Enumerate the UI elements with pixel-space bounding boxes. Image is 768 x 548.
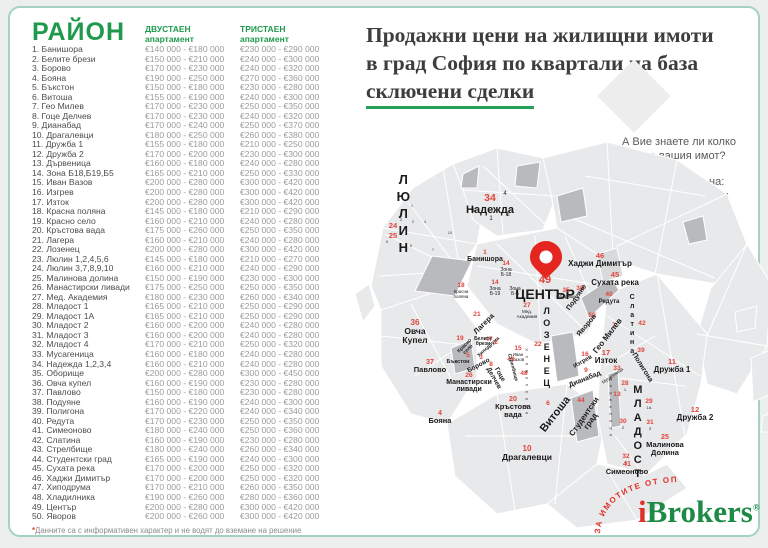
page-title: Продажни цени на жилищни имоти в град Со… <box>366 21 766 109</box>
district-label: ЛЮЛИН <box>396 172 410 257</box>
price-range: €300 000 - €420 000 <box>240 512 335 522</box>
district-number: 14 <box>500 261 511 268</box>
district-number: 24 <box>389 222 397 230</box>
district-label: 37Павлово <box>414 359 446 374</box>
district-number: 2 <box>494 340 498 347</box>
district-label: 313 <box>646 420 653 431</box>
district-label: 12Дружба 2 <box>677 406 714 422</box>
ibrokers-logo: iBrokers® <box>638 494 760 530</box>
sofia-district-map: ЗА ИМОТИТЕ ОТ ОПИТ ЛЮЛИН242513245671034Н… <box>355 136 768 548</box>
district-number: 1 <box>467 249 503 256</box>
district-number: 15 <box>512 346 524 353</box>
district-label: 3 <box>471 208 474 214</box>
district-label: 6 <box>410 244 412 248</box>
district-number: 14 <box>489 280 500 287</box>
district-label: Хладилника <box>524 347 528 417</box>
infographic-card: РАЙОН ДВУСТАЕН апартамент ТРИСТАЕН апарт… <box>8 6 760 537</box>
district-number: 6 <box>546 400 550 407</box>
district-number: 12 <box>677 406 714 414</box>
district-number: 21 <box>473 311 480 318</box>
district-number: 42 <box>638 320 645 327</box>
district-number: 21 <box>473 311 480 318</box>
district-label: Слатина <box>628 294 635 357</box>
district-number: 41 <box>606 461 649 468</box>
district-number: 26 <box>446 372 492 379</box>
district-name: 50. Яворов <box>32 512 145 522</box>
district-label: 18Красна поляна <box>454 283 469 299</box>
district-number: 9 <box>584 367 588 374</box>
district-label: 45Сухата река <box>591 271 639 287</box>
district-number: 10 <box>502 445 552 453</box>
district-label: 1Банишора <box>467 249 503 263</box>
district-number: 49 <box>515 275 575 287</box>
district-number: 27 <box>517 303 538 310</box>
district-number: 2 <box>494 340 498 347</box>
district-label: 40Редута <box>599 292 620 305</box>
district-label: 26Манастирски ливади <box>446 372 492 394</box>
district-label: 1 <box>489 216 492 222</box>
district-number: 13 <box>613 391 620 398</box>
logo-brokers: Brokers <box>647 494 753 529</box>
district-number: 39 <box>637 347 644 354</box>
price-table: 1. Банишора€140 000 - €180 000€230 000 -… <box>32 45 352 522</box>
registered-mark: ® <box>753 503 760 513</box>
district-number: 9 <box>584 367 588 374</box>
district-label: ЛОЗЕНЕЦ <box>541 306 550 390</box>
district-label: 27Мед. Академия <box>517 303 538 319</box>
district-number: 44 <box>577 397 584 404</box>
district-label: Бъкстон <box>446 360 469 366</box>
district-label: 25Малинова Долина <box>646 434 684 457</box>
district-label: 14Зона Б-19 <box>489 280 500 297</box>
district-number: 39 <box>637 347 644 354</box>
district-number: 40 <box>599 292 620 299</box>
column-header-three-room: ТРИСТАЕН апартамент <box>240 24 289 44</box>
district-label: 17Изток <box>595 349 617 365</box>
district-label: 36Овча Купел <box>402 319 427 345</box>
footnote: *Данните са с информативен характер и не… <box>32 526 301 535</box>
district-number: 25 <box>389 232 397 240</box>
district-number: 34 <box>466 194 514 205</box>
district-label: 3 <box>400 218 402 222</box>
district-label: 5 <box>386 240 388 244</box>
district-number: 44 <box>577 397 584 404</box>
district-number: 19 <box>456 336 463 343</box>
table-title: РАЙОН <box>32 18 125 47</box>
district-label: 291А <box>645 399 652 410</box>
district-number: 19 <box>456 336 463 343</box>
district-number: 42 <box>638 320 645 327</box>
district-number: 28 <box>621 381 628 388</box>
district-number: 4 <box>429 410 452 417</box>
district-label: 2 <box>412 220 414 224</box>
district-number: 25 <box>646 434 684 441</box>
table-row: 50. Яворов€200 000 - €260 000€300 000 - … <box>32 512 352 522</box>
column-header-two-room: ДВУСТАЕН апартамент <box>145 24 194 44</box>
district-label: 46Хаджи Димитър <box>568 252 632 268</box>
district-number: 18 <box>454 283 469 290</box>
district-number: 45 <box>591 271 639 279</box>
district-label: 7 <box>432 248 434 252</box>
district-label: 10 <box>448 231 452 235</box>
district-label: 4Бояна <box>429 410 452 425</box>
district-label: 281 <box>621 381 628 392</box>
district-label: 4 <box>424 220 426 224</box>
district-label: Дървеница <box>608 376 612 439</box>
district-number: 13 <box>613 391 620 398</box>
district-number: 35 <box>556 288 576 295</box>
district-label: 1 <box>411 204 413 208</box>
district-label: 10Драгалевци <box>502 445 552 462</box>
district-label: 11Дружба 1 <box>654 358 691 374</box>
district-number: 11 <box>654 358 691 366</box>
district-number: 37 <box>414 359 446 366</box>
district-label: 14Зона Б-18 <box>500 261 511 278</box>
district-number: 31 <box>646 420 653 427</box>
logo-i: i <box>638 494 647 529</box>
price-range: €200 000 - €260 000 <box>145 512 240 522</box>
district-number: 46 <box>568 252 632 260</box>
district-number: 29 <box>645 399 652 406</box>
district-label: 4 <box>503 191 506 197</box>
district-number: 36 <box>402 319 427 327</box>
underlined-title-part: сключени сделки <box>366 77 534 109</box>
district-number: 30 <box>619 419 626 426</box>
district-number: 17 <box>595 349 617 357</box>
district-label: 41Симеоново <box>606 461 649 476</box>
district-number: 6 <box>546 400 550 407</box>
district-label: 302 <box>619 419 626 430</box>
district-number: 24 <box>389 222 397 230</box>
district-label: 2 <box>506 212 509 218</box>
district-number: 25 <box>389 232 397 240</box>
